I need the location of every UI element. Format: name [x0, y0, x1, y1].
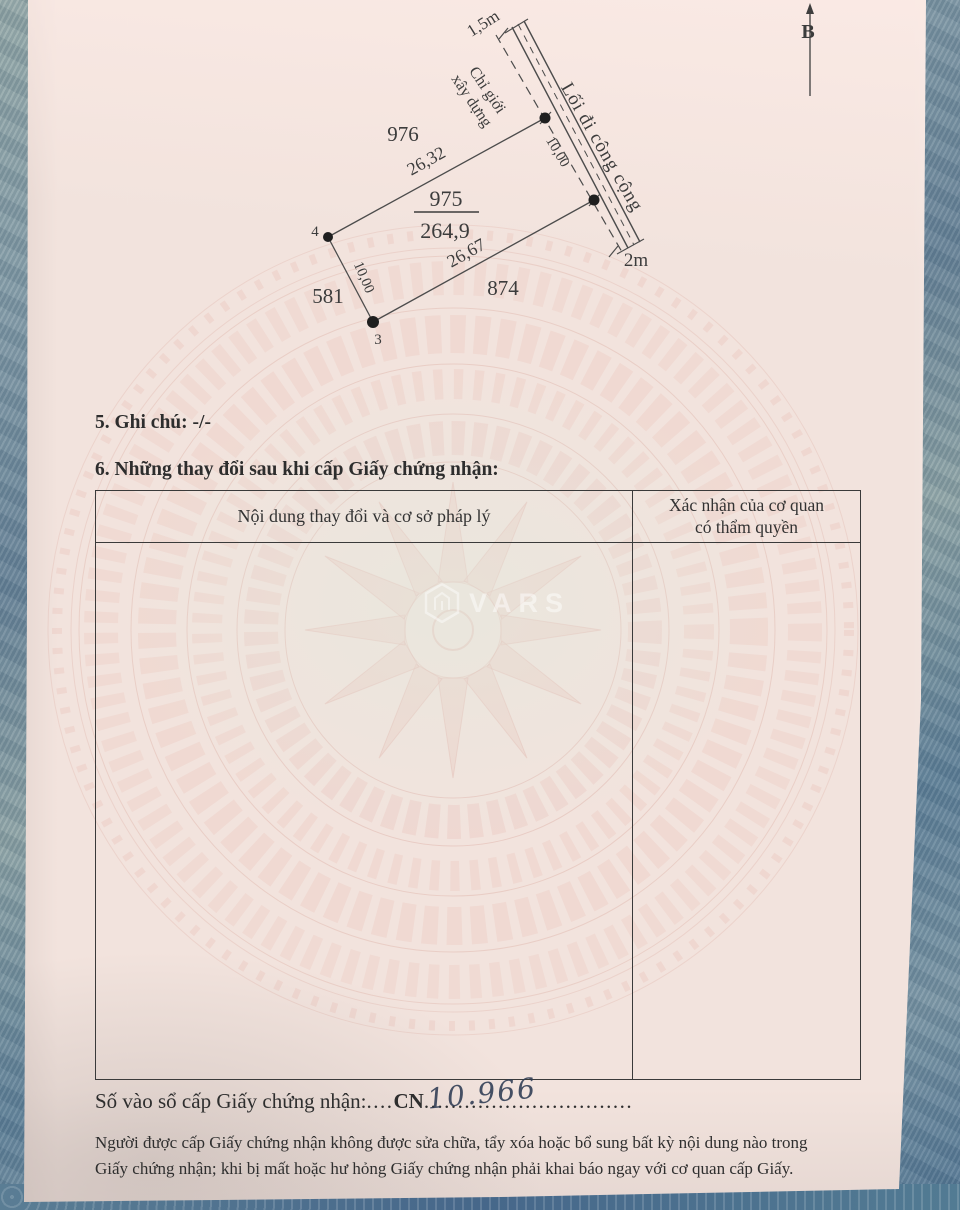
- table-header-authority-line1: Xác nhận của cơ quan: [669, 495, 824, 516]
- table-header-content-column: Nội dung thay đổi và cơ sở pháp lý: [96, 491, 633, 543]
- photo-stage: B: [0, 0, 960, 1210]
- north-arrow: [806, 3, 814, 96]
- footer-note-line1: Người được cấp Giấy chứng nhận không đượ…: [95, 1130, 867, 1156]
- edge-length-right: 10,00: [542, 134, 573, 170]
- table-header-authority-line2: có thẩm quyền: [695, 517, 798, 538]
- vertex-label-4: 4: [311, 224, 319, 240]
- section-5-heading: 5. Ghi chú:: [95, 412, 188, 433]
- changes-table: Nội dung thay đổi và cơ sở pháp lý Xác n…: [95, 490, 861, 1080]
- table-header-content-label: Nội dung thay đổi và cơ sở pháp lý: [237, 506, 490, 527]
- table-body-content-cell: [96, 543, 633, 1079]
- road-width-bottom-label: 2m: [624, 250, 649, 271]
- road-name-label: Lối đi công cộng: [556, 79, 647, 215]
- public-path-road: [499, 19, 644, 257]
- registry-code: CN: [394, 1089, 424, 1113]
- section-5-value: -/-: [193, 412, 211, 433]
- table-header-authority-column: Xác nhận của cơ quan có thẩm quyền: [633, 491, 860, 543]
- road-bottom-cap: [617, 239, 644, 254]
- edge-length-left: 10,00: [350, 259, 377, 295]
- certificate-paper: B: [0, 0, 960, 1210]
- road-bottom-tick: [609, 246, 618, 257]
- footer-note: Người được cấp Giấy chứng nhận không đượ…: [95, 1130, 867, 1182]
- parcel-number: 975: [430, 186, 463, 211]
- north-label: B: [801, 21, 814, 43]
- neighbor-parcel-left: 581: [312, 284, 344, 308]
- vertex-label-3: 3: [374, 332, 382, 348]
- vertex-dot-4: [323, 232, 333, 242]
- edge-length-bottom: 26,67: [444, 234, 489, 271]
- road-width-top-label: 1,5m: [463, 6, 502, 40]
- parcel-area: 264,9: [420, 218, 470, 243]
- registry-number-line: Số vào sổ cấp Giấy chứng nhận:....CN....…: [95, 1089, 633, 1114]
- section-6-heading: 6. Những thay đổi sau khi cấp Giấy chứng…: [95, 459, 499, 481]
- footer-note-line2: Giấy chứng nhận; khi bị mất hoặc hư hỏng…: [95, 1156, 867, 1182]
- table-body-authority-cell: [633, 543, 860, 1079]
- setback-boundary-line: [496, 35, 622, 252]
- vertex-dot-right: [589, 195, 600, 206]
- dimension-ticks: [540, 112, 600, 206]
- neighbor-parcel-bottom: 874: [487, 276, 519, 300]
- road-top-tick: [499, 28, 508, 39]
- registry-label: Số vào sổ cấp Giấy chứng nhận:: [95, 1089, 367, 1113]
- vertex-dot-3: [367, 316, 379, 328]
- registry-dots-1: ....: [367, 1089, 394, 1113]
- setback-label-line1: Chỉ giới: [465, 64, 509, 117]
- neighbor-parcel-top: 976: [387, 122, 419, 146]
- vertex-dot-top: [540, 113, 551, 124]
- road-top-cap: [505, 19, 528, 33]
- edge-length-top: 26,32: [404, 142, 449, 179]
- parcel-outline: [328, 118, 594, 322]
- setback-label-line2: xây dựng: [448, 71, 496, 130]
- setback-label: Chỉ giới xây dựng: [448, 61, 511, 131]
- section-5-note: 5. Ghi chú: -/-: [95, 412, 211, 434]
